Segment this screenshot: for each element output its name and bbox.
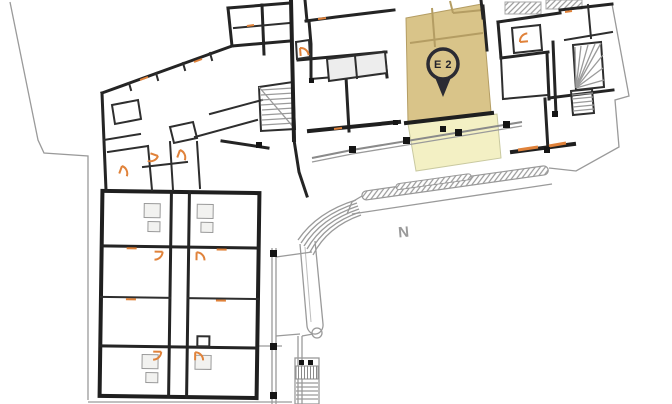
pin-label: E 2 (434, 59, 452, 71)
wing-top-rooms (228, 3, 290, 54)
colonnade-left (258, 248, 312, 404)
door-arc (125, 248, 227, 360)
wing-upper-left (102, 46, 268, 190)
block-lower-left (100, 191, 260, 398)
walkway-balcony (347, 165, 552, 214)
curved-ramp-stairs (298, 200, 361, 334)
north-indicator: N (397, 224, 409, 242)
floor-plan-svg: E 2 N (0, 0, 672, 404)
winding-stair (573, 42, 604, 90)
floor-plan-view: E 2 N (0, 0, 672, 404)
mid-stair (259, 82, 295, 131)
wing-middle (291, 0, 399, 196)
